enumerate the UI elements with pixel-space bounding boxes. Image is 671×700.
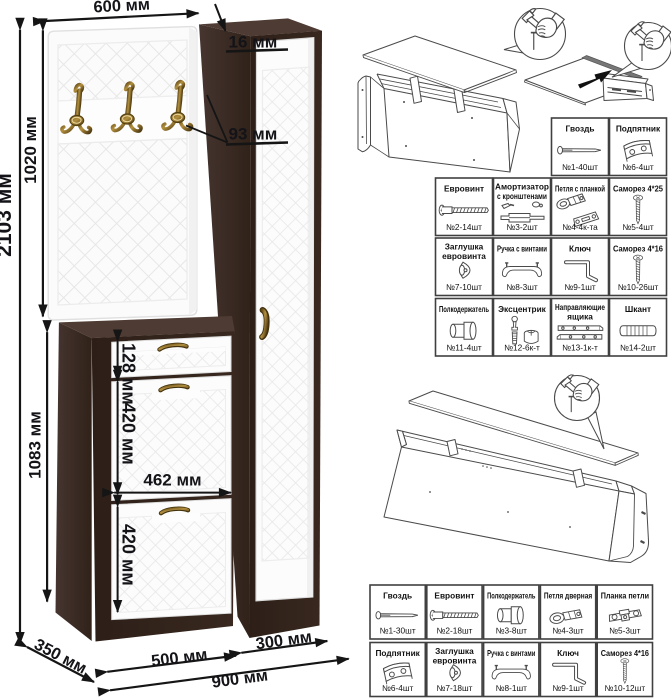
- svg-text:№1-40шт: №1-40шт: [562, 162, 598, 172]
- svg-text:евровинта: евровинта: [442, 251, 486, 261]
- svg-text:Ручка с винтами: Ручка с винтами: [487, 648, 535, 658]
- svg-text:350 мм: 350 мм: [31, 635, 89, 677]
- svg-text:Саморез 4*16: Саморез 4*16: [601, 648, 650, 658]
- svg-text:Направляющие: Направляющие: [555, 302, 605, 312]
- svg-text:№8-1шт: №8-1шт: [496, 683, 528, 693]
- svg-text:№14-2шт: №14-2шт: [620, 343, 656, 353]
- svg-text:№5-3шт: №5-3шт: [609, 626, 641, 636]
- svg-text:600 мм: 600 мм: [93, 0, 150, 16]
- svg-text:1083 мм: 1083 мм: [26, 411, 45, 479]
- svg-text:Саморез 4*16: Саморез 4*16: [613, 244, 663, 254]
- svg-text:№7-18шт: №7-18шт: [436, 683, 472, 693]
- svg-text:№2-14шт: №2-14шт: [446, 222, 482, 232]
- svg-text:Петля с планкой: Петля с планкой: [555, 184, 605, 194]
- svg-text:№3-8шт: №3-8шт: [496, 626, 528, 636]
- svg-text:Евровинт: Евровинт: [444, 184, 484, 194]
- svg-text:№3-2шт: №3-2шт: [506, 222, 538, 232]
- svg-text:Амортизатор: Амортизатор: [495, 182, 549, 192]
- svg-text:Подпятник: Подпятник: [375, 648, 420, 658]
- svg-text:№9-1шт: №9-1шт: [552, 683, 584, 693]
- svg-text:№9-1шт: №9-1шт: [564, 282, 596, 292]
- svg-text:№6-4шт: №6-4шт: [382, 683, 414, 693]
- svg-text:Евровинт: Евровинт: [434, 591, 474, 601]
- svg-text:Полкодержатель: Полкодержатель: [487, 591, 535, 601]
- svg-text:16 мм: 16 мм: [229, 33, 278, 52]
- svg-text:Гвоздь: Гвоздь: [566, 124, 595, 134]
- svg-text:Ключ: Ключ: [569, 244, 591, 254]
- svg-text:420 мм: 420 мм: [119, 524, 139, 586]
- svg-text:Саморез 4*25: Саморез 4*25: [613, 184, 663, 194]
- svg-text:Полкодержатель: Полкодержатель: [439, 304, 489, 314]
- svg-text:Шкант: Шкант: [625, 304, 651, 314]
- svg-text:1020 мм: 1020 мм: [21, 116, 40, 184]
- svg-text:евровинта: евровинта: [433, 656, 477, 666]
- svg-text:№4-3шт: №4-3шт: [552, 626, 584, 636]
- svg-text:Ключ: Ключ: [557, 648, 579, 658]
- svg-text:Подпятник: Подпятник: [616, 124, 661, 134]
- svg-text:№1-30шт: №1-30шт: [380, 626, 416, 636]
- svg-text:Гвоздь: Гвоздь: [383, 591, 412, 601]
- svg-text:500 мм: 500 мм: [150, 646, 208, 671]
- svg-text:№10-26шт: №10-26шт: [618, 282, 659, 292]
- svg-text:Ручка с винтами: Ручка с винтами: [497, 244, 547, 254]
- svg-text:Планка петли: Планка петли: [601, 591, 649, 601]
- svg-text:Заглушка: Заглушка: [435, 646, 474, 656]
- svg-text:Эксцентрик: Эксцентрик: [498, 304, 547, 314]
- svg-text:№13-1к-т: №13-1к-т: [562, 343, 598, 353]
- svg-text:462 мм: 462 мм: [143, 471, 201, 490]
- svg-text:128 мм: 128 мм: [119, 343, 139, 405]
- svg-text:№8-3шт: №8-3шт: [506, 282, 538, 292]
- svg-text:№12-6к-т: №12-6к-т: [504, 343, 540, 353]
- svg-text:2103 мм: 2103 мм: [0, 173, 16, 257]
- svg-text:с кронштенами: с кронштенами: [497, 191, 547, 201]
- svg-text:Заглушка: Заглушка: [445, 242, 484, 252]
- svg-text:№4-4к-та: №4-4к-та: [562, 222, 598, 232]
- svg-text:№5-4шт: №5-4шт: [622, 222, 654, 232]
- svg-text:№6-4шт: №6-4шт: [622, 162, 654, 172]
- svg-text:900 мм: 900 мм: [211, 666, 269, 691]
- svg-text:Петля дверная: Петля дверная: [544, 591, 592, 601]
- svg-text:№11-4шт: №11-4шт: [446, 343, 482, 353]
- svg-text:№10-12шт: №10-12шт: [605, 683, 646, 693]
- svg-text:93 мм: 93 мм: [229, 125, 278, 144]
- svg-text:420 мм: 420 мм: [119, 403, 139, 465]
- svg-text:№7-10шт: №7-10шт: [446, 282, 482, 292]
- svg-text:№2-18шт: №2-18шт: [436, 626, 472, 636]
- svg-text:ящика: ящика: [567, 312, 593, 322]
